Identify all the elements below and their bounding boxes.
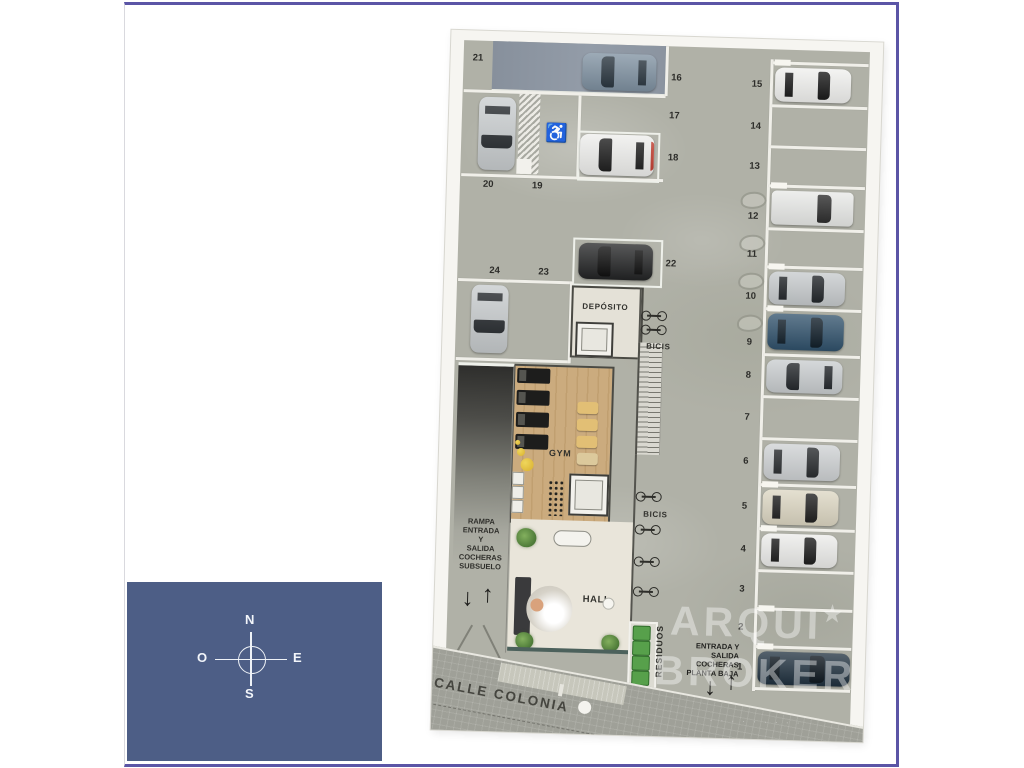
bike-icon	[635, 523, 661, 536]
sidewalk-disc	[577, 700, 592, 715]
stall-tick	[767, 305, 783, 311]
spot-number-16: 16	[671, 72, 682, 83]
stall-tick	[771, 182, 787, 188]
spot-number-17: 17	[669, 110, 680, 121]
spot-number-15: 15	[748, 78, 766, 90]
waste-bin	[632, 625, 650, 641]
spot-number-9: 9	[740, 336, 758, 348]
spot-number-21: 21	[472, 52, 483, 63]
spot-number-22: 22	[665, 258, 676, 269]
elevator-upper	[575, 322, 614, 358]
spot-number-12: 12	[744, 211, 762, 223]
gym-shelf	[511, 500, 523, 513]
spot-number-19: 19	[532, 180, 543, 191]
treadmill	[516, 412, 549, 428]
treadmill	[517, 368, 550, 384]
screenshot-root: { "frame": {"border_color": "#5b55a6"}, …	[0, 0, 1024, 768]
waste-bin	[632, 640, 650, 656]
car	[767, 313, 844, 351]
bike-icon	[634, 555, 660, 568]
compass-north: N	[245, 612, 254, 627]
ramp-arrow-up: ↑	[481, 583, 494, 607]
car	[761, 533, 838, 568]
dumbbell-rack	[547, 480, 565, 516]
waste-bin	[632, 655, 650, 671]
spot-number-18: 18	[668, 152, 679, 163]
gym-bench	[577, 402, 598, 415]
spot-number-20: 20	[483, 179, 494, 190]
deposito-label: DEPÓSITO	[573, 301, 637, 312]
spot-number-6: 6	[737, 455, 755, 467]
floor-plan: ♿ DEPÓSITO BICIS BICIS GYM HALL RAMPA EN…	[431, 30, 884, 743]
elevator-lower	[568, 473, 609, 516]
gym-label: GYM	[549, 448, 572, 459]
compass-east: E	[293, 650, 302, 665]
bike-icon	[633, 585, 659, 598]
ramp-label: RAMPA ENTRADA Y SALIDA COCHERAS SUBSUELO	[452, 516, 509, 572]
car	[763, 443, 840, 481]
compass-south: S	[245, 686, 254, 701]
car	[768, 271, 845, 306]
car	[762, 489, 839, 526]
bike-icon	[641, 309, 667, 322]
bike-icon	[636, 490, 662, 503]
spot-number-24: 24	[489, 265, 500, 276]
compass-circle	[238, 646, 266, 674]
compass-west: O	[197, 650, 207, 665]
gym-shelf	[512, 486, 524, 499]
car	[766, 359, 843, 394]
compass-panel: N S O E	[127, 582, 382, 761]
bicis-bottom-label: BICIS	[643, 510, 668, 520]
hatch-end-mark	[516, 159, 531, 174]
entrance-canopy	[553, 530, 591, 547]
spot-number-10: 10	[742, 290, 760, 302]
bike-icon	[640, 323, 666, 336]
stall-tick	[775, 59, 791, 65]
gym-bench	[577, 453, 598, 466]
car	[470, 284, 509, 353]
spot-number-4: 4	[734, 543, 752, 555]
spot-number-23: 23	[538, 266, 549, 277]
spot-number-7: 7	[738, 411, 756, 423]
ramp-arrow-down: ↓	[461, 586, 474, 610]
handicap-icon: ♿	[545, 123, 568, 145]
car	[477, 97, 516, 171]
bicis-top-label: BICIS	[646, 342, 671, 352]
treadmill	[516, 390, 549, 406]
spot-number-13: 13	[745, 160, 763, 172]
gym-shelf	[512, 472, 524, 485]
car	[774, 67, 851, 103]
spot-number-11: 11	[743, 248, 761, 260]
gym-bench	[576, 436, 597, 449]
watermark: ARQUI★ BROKER	[654, 584, 857, 701]
car	[578, 243, 653, 281]
plant	[516, 528, 537, 548]
car	[582, 53, 657, 92]
gym-bench	[577, 419, 598, 432]
spot-number-5: 5	[735, 500, 753, 512]
car	[771, 190, 854, 226]
spot-number-8: 8	[739, 369, 757, 381]
stairs	[635, 342, 663, 455]
stall-tick	[762, 481, 778, 487]
ramp	[450, 362, 515, 653]
car	[579, 134, 654, 177]
stall-tick	[769, 263, 785, 269]
stall-tick	[761, 525, 777, 531]
spot-number-14: 14	[747, 120, 765, 132]
